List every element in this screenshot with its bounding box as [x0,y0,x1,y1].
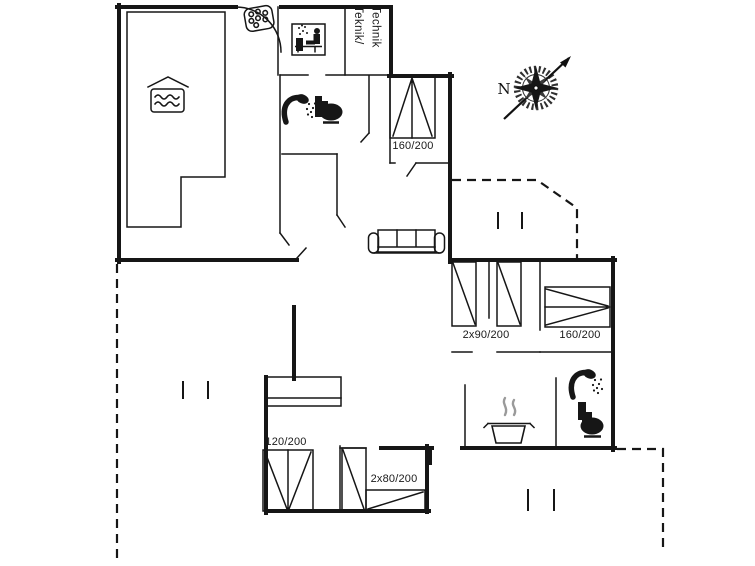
technical-room-line1: Teknik/ [352,6,364,45]
toilet-icon [578,402,604,437]
bathroom-top-icons [284,92,342,122]
floor-plan: 160/200 2x90/200 160/200 120/200 2x80/20… [0,0,755,566]
bed-label-top-double: 160/200 [392,140,433,152]
bed-bottom-single [263,450,313,511]
stove-pot-icon [484,398,534,443]
swimming-pool-icon [148,77,188,112]
terrace-outlines [117,180,663,560]
bed-label-right-double: 160/200 [559,329,600,341]
toilet-icon [315,96,343,123]
bed-top-double [390,76,435,138]
steam [513,400,515,415]
technical-room-line2: Technik [370,6,382,48]
bed-right-double [545,287,610,327]
sauna-icon [292,24,325,55]
swimming-pool [127,12,225,227]
entrance-shower-icon [243,5,275,33]
compass-north-label: N [497,80,510,98]
compass-rose-icon [504,56,571,119]
technical-room-label: Teknik/ Technik [348,6,384,76]
shower-icon [284,92,317,122]
sofa-icon [369,230,445,253]
bed-twin-right [452,262,521,326]
bed-label-bottom-twin: 2x80/200 [371,473,418,485]
bed-label-bottom-single: 120/200 [265,436,306,448]
bathroom-bottom-icons [571,367,603,436]
bed-label-twin-right: 2x90/200 [463,329,510,341]
window-marks [183,212,554,511]
steam [504,398,506,415]
shower-icon [571,367,603,397]
wardrobe [267,377,341,406]
